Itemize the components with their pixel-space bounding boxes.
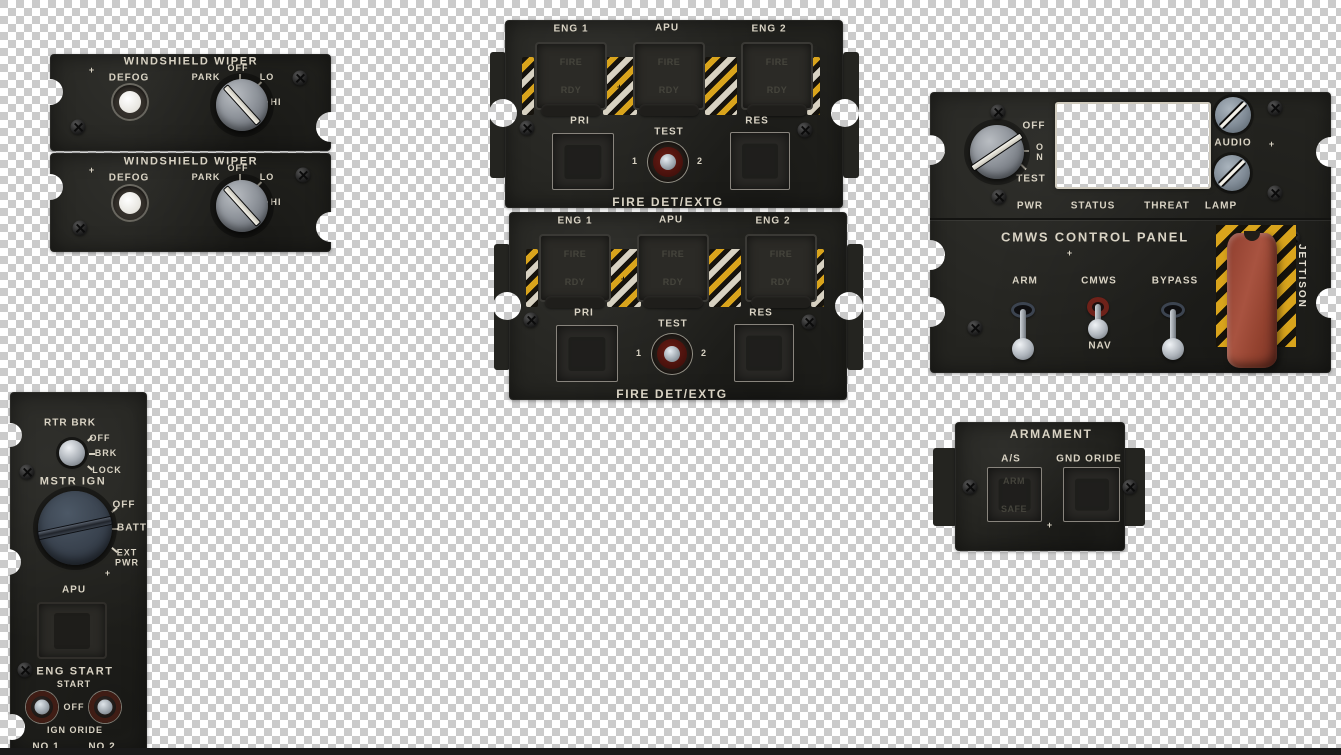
rdy-legend: RDY xyxy=(767,85,788,95)
screw-icon xyxy=(296,168,311,183)
panel-mount-notch xyxy=(37,174,63,200)
armament-panel: ARMAMENT A/S GND ORIDE ARM SAFE + xyxy=(955,422,1125,551)
tick-ign-batt xyxy=(112,528,119,530)
texture-sheet-canvas: { "background":{"checker_light":"#ffffff… xyxy=(0,0,1341,755)
threat-label: THREAT xyxy=(1144,200,1190,212)
defog-label: DEFOG xyxy=(109,172,150,184)
fire-test-switch[interactable] xyxy=(648,142,688,182)
panel-mount-notch xyxy=(316,212,346,242)
arm-toggle-switch[interactable] xyxy=(1010,302,1036,364)
apu-label: APU xyxy=(659,214,683,226)
eng2-label: ENG 2 xyxy=(751,23,786,35)
safe-legend: SAFE xyxy=(1001,504,1027,514)
pwr-position-o: O xyxy=(1036,142,1044,152)
toggle-ball xyxy=(1012,338,1034,360)
eng1-fire-button[interactable]: FIRE RDY xyxy=(535,42,607,110)
knob-pointer xyxy=(1219,101,1248,130)
texture-strip xyxy=(0,748,1341,755)
screw-icon xyxy=(963,480,978,495)
ign-position-ext-pwr: EXT PWR xyxy=(115,548,139,569)
screw-icon xyxy=(524,313,539,328)
eng1-fire-button[interactable]: FIRE RDY xyxy=(539,234,611,302)
screw-icon xyxy=(968,321,983,336)
panel-mount-notch xyxy=(915,240,945,270)
pwr-position-test: TEST xyxy=(1016,173,1046,185)
fire-legend: FIRE xyxy=(564,249,587,259)
rdy-legend: RDY xyxy=(565,277,586,287)
panel-side-lobe xyxy=(933,448,957,526)
wiper-speed-knob[interactable] xyxy=(216,180,268,232)
lamp-base xyxy=(751,296,811,308)
eng2-fire-button[interactable]: FIRE RDY xyxy=(745,234,817,302)
fire-legend: FIRE xyxy=(766,57,789,67)
audio-volume-knob[interactable] xyxy=(1215,97,1251,133)
rdy-legend: RDY xyxy=(561,85,582,95)
knob-pointer xyxy=(37,516,113,541)
cmws-power-knob[interactable] xyxy=(970,125,1024,179)
rtr-position-lock: LOCK xyxy=(92,465,122,475)
screw-icon xyxy=(802,315,817,330)
nav-label: NAV xyxy=(1088,340,1111,352)
pwr-position-off: OFF xyxy=(1023,120,1046,132)
panel-mount-notch xyxy=(37,79,63,105)
screw-icon xyxy=(1268,186,1283,201)
rotor-brake-switch[interactable] xyxy=(59,440,85,466)
as-label: A/S xyxy=(1001,453,1021,465)
panel-mount-notch xyxy=(493,292,521,320)
panel-mount-notch xyxy=(835,292,863,320)
test-position-2: 2 xyxy=(697,156,703,166)
hazard-stripes xyxy=(522,57,534,115)
master-ignition-knob[interactable] xyxy=(38,491,112,565)
alignment-cross: + xyxy=(89,65,95,75)
arm-label: ARM xyxy=(1012,275,1038,287)
res-button[interactable] xyxy=(734,324,794,382)
tick-brk xyxy=(89,453,95,455)
wiper-speed-knob[interactable] xyxy=(216,79,268,131)
fire-legend: FIRE xyxy=(662,249,685,259)
knob-pointer xyxy=(1218,159,1247,188)
lamp-dim-knob[interactable] xyxy=(1214,155,1250,191)
knob-position-hi: HI xyxy=(271,197,282,207)
alignment-cross: + xyxy=(617,82,623,92)
knob-pointer xyxy=(223,84,262,126)
fire-test-switch[interactable] xyxy=(652,334,692,374)
alignment-cross: + xyxy=(89,165,95,175)
panel-seam xyxy=(930,218,1331,220)
alignment-cross: + xyxy=(1067,248,1073,258)
arm-legend: ARM xyxy=(1003,476,1025,486)
off-position-label: OFF xyxy=(64,702,85,712)
panel-mount-notch xyxy=(0,714,25,740)
rdy-legend: RDY xyxy=(663,277,684,287)
panel-mount-notch xyxy=(1316,137,1341,167)
screw-icon xyxy=(992,190,1007,205)
rdy-legend: RDY xyxy=(771,277,792,287)
ign-oride-label: IGN ORIDE xyxy=(47,725,103,735)
screw-icon xyxy=(1123,480,1138,495)
test-label: TEST xyxy=(654,126,684,138)
toggle-shaft xyxy=(1020,309,1026,341)
mstr-ign-label: MSTR IGN xyxy=(40,476,107,489)
panel-title: FIRE DET/EXTG xyxy=(616,388,727,402)
defog-button[interactable] xyxy=(113,85,147,119)
button-lens xyxy=(54,613,90,649)
fire-det-extg-panel-1: ENG 1 APU ENG 2 + FIRE RDY FIRE RDY FIRE… xyxy=(505,20,843,208)
status-label: STATUS xyxy=(1071,200,1116,212)
lamp-base xyxy=(643,296,703,308)
alignment-cross: + xyxy=(1047,520,1053,530)
rtr-position-brk: BRK xyxy=(95,448,118,458)
hazard-stripes xyxy=(526,249,538,307)
panel-mount-notch xyxy=(915,297,945,327)
windshield-wiper-panel-2: WINDSHIELD WIPER + DEFOG PARK OFF LO HI xyxy=(50,153,331,252)
jettison-handle[interactable] xyxy=(1227,233,1277,368)
gnd-oride-button[interactable] xyxy=(1063,467,1120,522)
res-button[interactable] xyxy=(730,132,790,190)
bypass-toggle-switch[interactable] xyxy=(1160,302,1186,364)
knob-position-off: OFF xyxy=(228,63,249,73)
knob-position-lo: LO xyxy=(260,172,275,182)
cmws-label: CMWS xyxy=(1081,275,1117,287)
cmws-control-panel: OFF O N TEST AUDIO + PWR STATUS THREAT L… xyxy=(930,92,1331,373)
screw-icon xyxy=(991,105,1006,120)
pri-button[interactable] xyxy=(552,133,614,190)
knob-position-park: PARK xyxy=(192,172,221,182)
lamp-base xyxy=(639,104,699,116)
jettison-label: JETTISON xyxy=(1296,244,1307,354)
eng1-label: ENG 1 xyxy=(557,215,592,227)
defog-label: DEFOG xyxy=(109,72,150,84)
knob-position-park: PARK xyxy=(192,72,221,82)
eng2-start-switch[interactable] xyxy=(89,691,121,723)
toggle-ball xyxy=(1088,319,1108,339)
fire-det-extg-panel-2: ENG 1 APU ENG 2 + FIRE RDY FIRE RDY FIRE… xyxy=(509,212,847,400)
power-eng-start-panel: RTR BRK OFF BRK LOCK MSTR IGN OFF BATT E… xyxy=(10,392,147,755)
lamp-base xyxy=(541,104,601,116)
arm-safe-button[interactable]: ARM SAFE xyxy=(987,467,1042,522)
panel-title: ARMAMENT xyxy=(1010,428,1093,442)
apu-label: APU xyxy=(655,22,679,34)
gnd-oride-label: GND ORIDE xyxy=(1056,453,1122,465)
eng-start-label: ENG START xyxy=(36,666,113,679)
rtr-brk-label: RTR BRK xyxy=(44,417,96,429)
knob-position-lo: LO xyxy=(260,72,275,82)
apu-label: APU xyxy=(62,584,86,596)
test-position-2: 2 xyxy=(701,348,707,358)
screw-icon xyxy=(798,123,813,138)
alignment-cross: + xyxy=(1269,139,1275,149)
eng1-start-switch[interactable] xyxy=(26,691,58,723)
rdy-legend: RDY xyxy=(659,85,680,95)
knob-position-hi: HI xyxy=(271,97,282,107)
fire-legend: FIRE xyxy=(658,57,681,67)
screw-icon xyxy=(293,71,308,86)
hazard-stripes xyxy=(705,57,737,115)
eng2-label: ENG 2 xyxy=(755,215,790,227)
screw-icon xyxy=(73,221,88,236)
bypass-label: BYPASS xyxy=(1152,275,1198,287)
tick-test xyxy=(1020,164,1026,170)
lamp-label: LAMP xyxy=(1205,200,1237,212)
knob-position-off: OFF xyxy=(228,163,249,173)
lamp-base xyxy=(545,296,605,308)
toggle-ball xyxy=(1162,338,1184,360)
alignment-cross: + xyxy=(105,568,111,578)
apu-fire-button[interactable]: FIRE RDY xyxy=(633,42,705,110)
panel-title: CMWS CONTROL PANEL xyxy=(1001,231,1189,246)
panel-mount-notch xyxy=(831,99,859,127)
test-label: TEST xyxy=(658,318,688,330)
eng1-label: ENG 1 xyxy=(553,23,588,35)
res-label: RES xyxy=(745,115,769,127)
screw-icon xyxy=(71,120,86,135)
knob-pointer xyxy=(223,185,262,227)
apu-fire-button[interactable]: FIRE RDY xyxy=(637,234,709,302)
eng2-fire-button[interactable]: FIRE RDY xyxy=(741,42,813,110)
panel-mount-notch xyxy=(316,112,346,142)
cmws-display-cutout xyxy=(1055,102,1211,189)
panel-mount-notch xyxy=(489,99,517,127)
defog-button[interactable] xyxy=(113,186,147,220)
panel-mount-notch xyxy=(915,135,945,165)
lamp-base xyxy=(747,104,807,116)
res-label: RES xyxy=(749,307,773,319)
pri-label: PRI xyxy=(570,115,590,127)
knob-pointer xyxy=(970,132,1024,171)
test-position-1: 1 xyxy=(632,156,638,166)
pwr-label: PWR xyxy=(1017,200,1043,212)
panel-title: FIRE DET/EXTG xyxy=(612,196,723,210)
screw-icon xyxy=(20,465,35,480)
test-position-1: 1 xyxy=(636,348,642,358)
start-position-label: START xyxy=(57,679,91,689)
panel-mount-notch xyxy=(1316,288,1341,318)
windshield-wiper-panel-1: WINDSHIELD WIPER + DEFOG PARK OFF LO HI xyxy=(50,54,331,151)
pwr-position-n: N xyxy=(1036,152,1044,162)
screw-icon xyxy=(1268,101,1283,116)
ign-position-batt: BATT xyxy=(117,522,147,534)
fire-legend: FIRE xyxy=(560,57,583,67)
audio-label: AUDIO xyxy=(1214,137,1251,149)
screw-icon xyxy=(520,121,535,136)
hazard-stripes xyxy=(709,249,741,307)
alignment-cross: + xyxy=(621,274,627,284)
apu-start-button[interactable] xyxy=(37,602,107,659)
toggle-shaft xyxy=(1170,309,1176,341)
pri-button[interactable] xyxy=(556,325,618,382)
screw-icon xyxy=(18,663,33,678)
pri-label: PRI xyxy=(574,307,594,319)
fire-legend: FIRE xyxy=(770,249,793,259)
